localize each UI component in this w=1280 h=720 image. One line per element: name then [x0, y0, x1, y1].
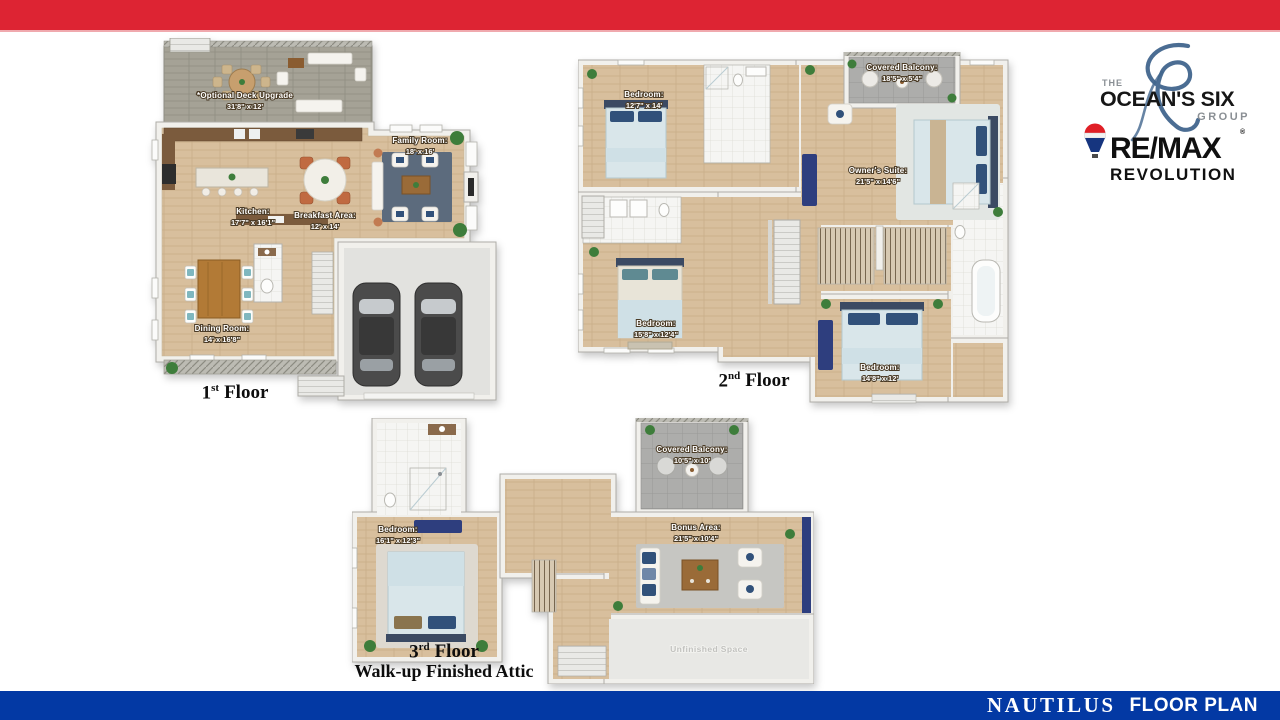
suite-dims: 21'5" x 14'6": [856, 177, 900, 186]
bonus-label: Bonus Area:: [671, 523, 720, 532]
family-dims: 18' x 16': [406, 147, 435, 156]
top-red-bar: [0, 0, 1280, 32]
deck-label: *Optional Deck Upgrade: [197, 91, 293, 100]
bedroom2-label: Bedroom:: [636, 319, 675, 328]
floor-plan-2nd: Covered Balcony: 18'5" x 5'4" Bedroom: 1…: [578, 52, 1010, 414]
kitchen-label: Kitchen:: [236, 207, 270, 216]
breakfast-dims: 12' x 14': [311, 222, 340, 231]
balcony3-label: Covered Balcony:: [656, 445, 727, 454]
bedroom-attic-dims: 16'1" x 12'3": [376, 536, 420, 545]
caption-3rd-floor: 3rdFloor Walk-up Finished Attic: [324, 639, 564, 680]
footer-plan-name: NAUTILUS: [987, 693, 1116, 718]
remax-balloon-icon: [1085, 124, 1106, 159]
caption-1-num: 1: [202, 382, 212, 403]
caption-2-num: 2: [718, 370, 728, 391]
caption-2nd-floor: 2ndFloor: [664, 368, 844, 389]
balcony2-label: Covered Balcony:: [866, 63, 937, 72]
bedroom1-dims: 12'7" x 14': [626, 101, 663, 110]
breakfast-furniture: [300, 157, 350, 204]
bedroom2-dims: 15'8" x 12'4": [634, 330, 678, 339]
dining-furniture: [185, 260, 253, 323]
oceans-six-name: OCEAN'S SIX: [1100, 87, 1235, 111]
unfinished-label: Unfinished Space: [670, 644, 748, 654]
caption-1-ord: st: [211, 382, 219, 394]
remax-revolution: REVOLUTION: [1110, 165, 1236, 184]
caption-3-line1: 3rdFloor: [324, 639, 564, 660]
family-label: Family Room:: [392, 136, 447, 145]
dining-label: Dining Room:: [195, 324, 250, 333]
kitchen-dims: 17'7" x 16'1": [231, 218, 275, 227]
caption-1st-floor: 1stFloor: [145, 380, 325, 401]
floor-plan-1st: *Optional Deck Upgrade 31'8" x 12' Kitch…: [150, 38, 500, 405]
deck-dims: 31'8" x 12': [227, 102, 264, 111]
caption-1-rest: Floor: [224, 382, 268, 403]
remax-wordmark: RE/MAX: [1110, 132, 1222, 165]
caption-3-line2: Walk-up Finished Attic: [324, 663, 564, 680]
balcony3-dims: 10'5" x 10': [674, 456, 711, 465]
oceans-six-group: GROUP: [1197, 111, 1250, 123]
caption-3-ord: rd: [419, 641, 430, 653]
dining-dims: 14' x 16'8": [204, 335, 241, 344]
brand-logos: THE OCEAN'S SIX GROUP RE/MAX ® REVOLUTIO…: [1072, 40, 1258, 190]
logos-svg: THE OCEAN'S SIX GROUP RE/MAX ® REVOLUTIO…: [1072, 40, 1258, 190]
balcony2-dims: 18'5" x 5'4": [882, 74, 922, 83]
bedroom3-dims: 14'8" x 12': [862, 374, 899, 383]
caption-2-rest: Floor: [745, 370, 789, 391]
footer-bar: NAUTILUS FLOOR PLAN: [0, 691, 1280, 720]
breakfast-label: Breakfast Area:: [294, 211, 356, 220]
deck-area: [164, 38, 372, 124]
caption-3-num: 3: [409, 641, 419, 662]
caption-2-ord: nd: [728, 370, 740, 382]
bedroom3-label: Bedroom:: [860, 363, 899, 372]
slide: *Optional Deck Upgrade 31'8" x 12' Kitch…: [0, 0, 1280, 720]
caption-3-rest: Floor: [435, 641, 479, 662]
bedroom1-label: Bedroom:: [624, 90, 663, 99]
suite-label: Owner's Suite:: [849, 166, 908, 175]
bedroom-attic-label: Bedroom:: [378, 525, 417, 534]
remax-registered: ®: [1240, 128, 1246, 136]
footer-label: FLOOR PLAN: [1130, 695, 1259, 717]
bonus-dims: 21'5" x 10'4": [674, 534, 718, 543]
